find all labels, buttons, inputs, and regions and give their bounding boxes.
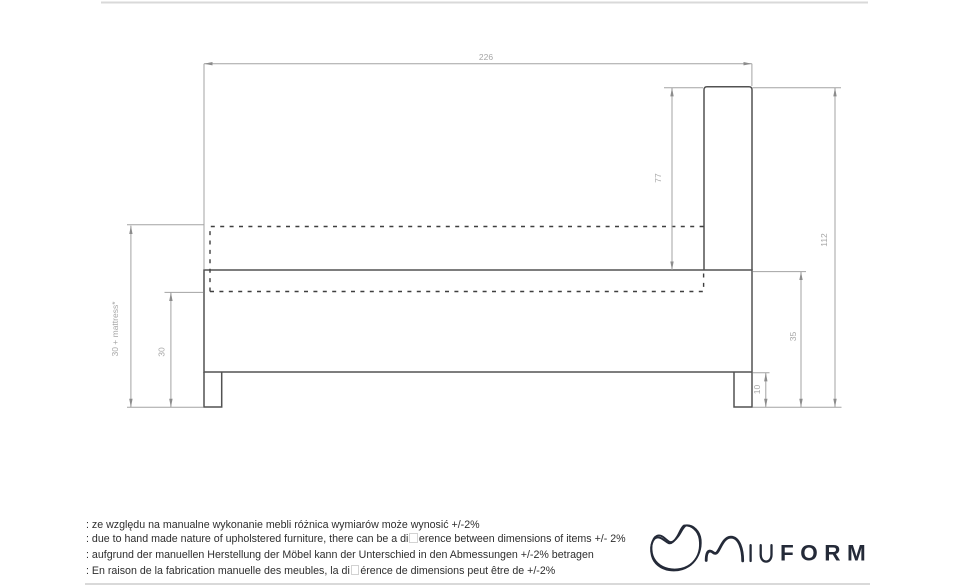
svg-text:30 + mattress*: 30 + mattress* xyxy=(110,301,120,357)
svg-text:112: 112 xyxy=(819,233,829,247)
svg-text:226: 226 xyxy=(479,52,493,62)
svg-text:77: 77 xyxy=(653,173,663,183)
svg-text:10: 10 xyxy=(752,385,762,395)
svg-text:FORM: FORM xyxy=(780,540,872,565)
svg-text:35: 35 xyxy=(788,332,798,342)
svg-text:30: 30 xyxy=(157,347,167,357)
